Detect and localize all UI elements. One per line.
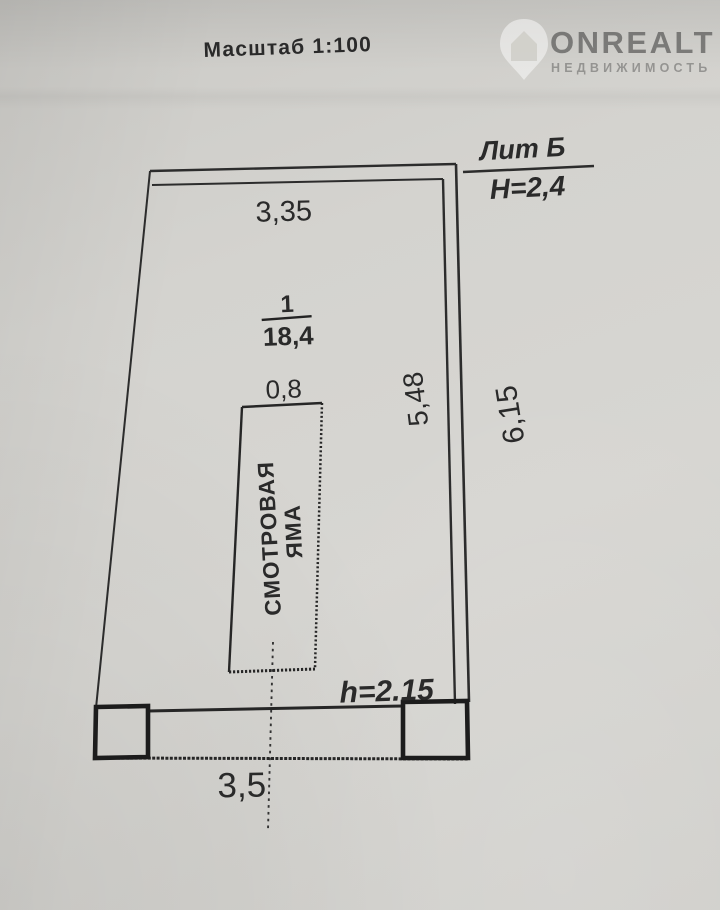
right-wall-inner-line — [443, 179, 455, 704]
room-area: 18,4 — [262, 320, 314, 352]
dim-wall-outer: 6,15 — [490, 383, 532, 446]
pit-height-label: h=2.15 — [339, 673, 436, 709]
onrealt-brand: ONREALT — [550, 25, 715, 60]
room-number: 1 — [280, 291, 294, 318]
left-pier — [95, 706, 148, 758]
top-wall-inner-line — [152, 179, 443, 185]
right-pier — [403, 701, 468, 758]
right-wall-outer-line — [456, 164, 469, 702]
scale-label: Масштаб 1:100 — [203, 33, 372, 62]
scanned-floor-plan-page: ONREALT НЕДВИЖИМОСТЬ Масштаб 1:100 Лит Б… — [0, 0, 720, 910]
dim-wall-inner: 5,48 — [397, 370, 434, 428]
building-height-label: H=2,4 — [489, 170, 566, 205]
left-wall-line — [96, 171, 150, 708]
dim-top-width: 3,35 — [255, 195, 312, 228]
onrealt-subtitle: НЕДВИЖИМОСТЬ — [551, 61, 711, 75]
liter-label: Лит Б — [477, 132, 566, 167]
onrealt-watermark: ONREALT НЕДВИЖИМОСТЬ — [500, 19, 715, 80]
pit-label-line2: ЯМА — [280, 504, 308, 559]
room-label: 1 18,4 — [261, 290, 315, 352]
top-wall-outer-line — [150, 164, 456, 171]
dim-bottom-width: 3,5 — [217, 766, 266, 806]
floor-plan-drawing: ONREALT НЕДВИЖИМОСТЬ Масштаб 1:100 Лит Б… — [0, 0, 720, 910]
dim-pit-width: 0,8 — [265, 373, 302, 404]
